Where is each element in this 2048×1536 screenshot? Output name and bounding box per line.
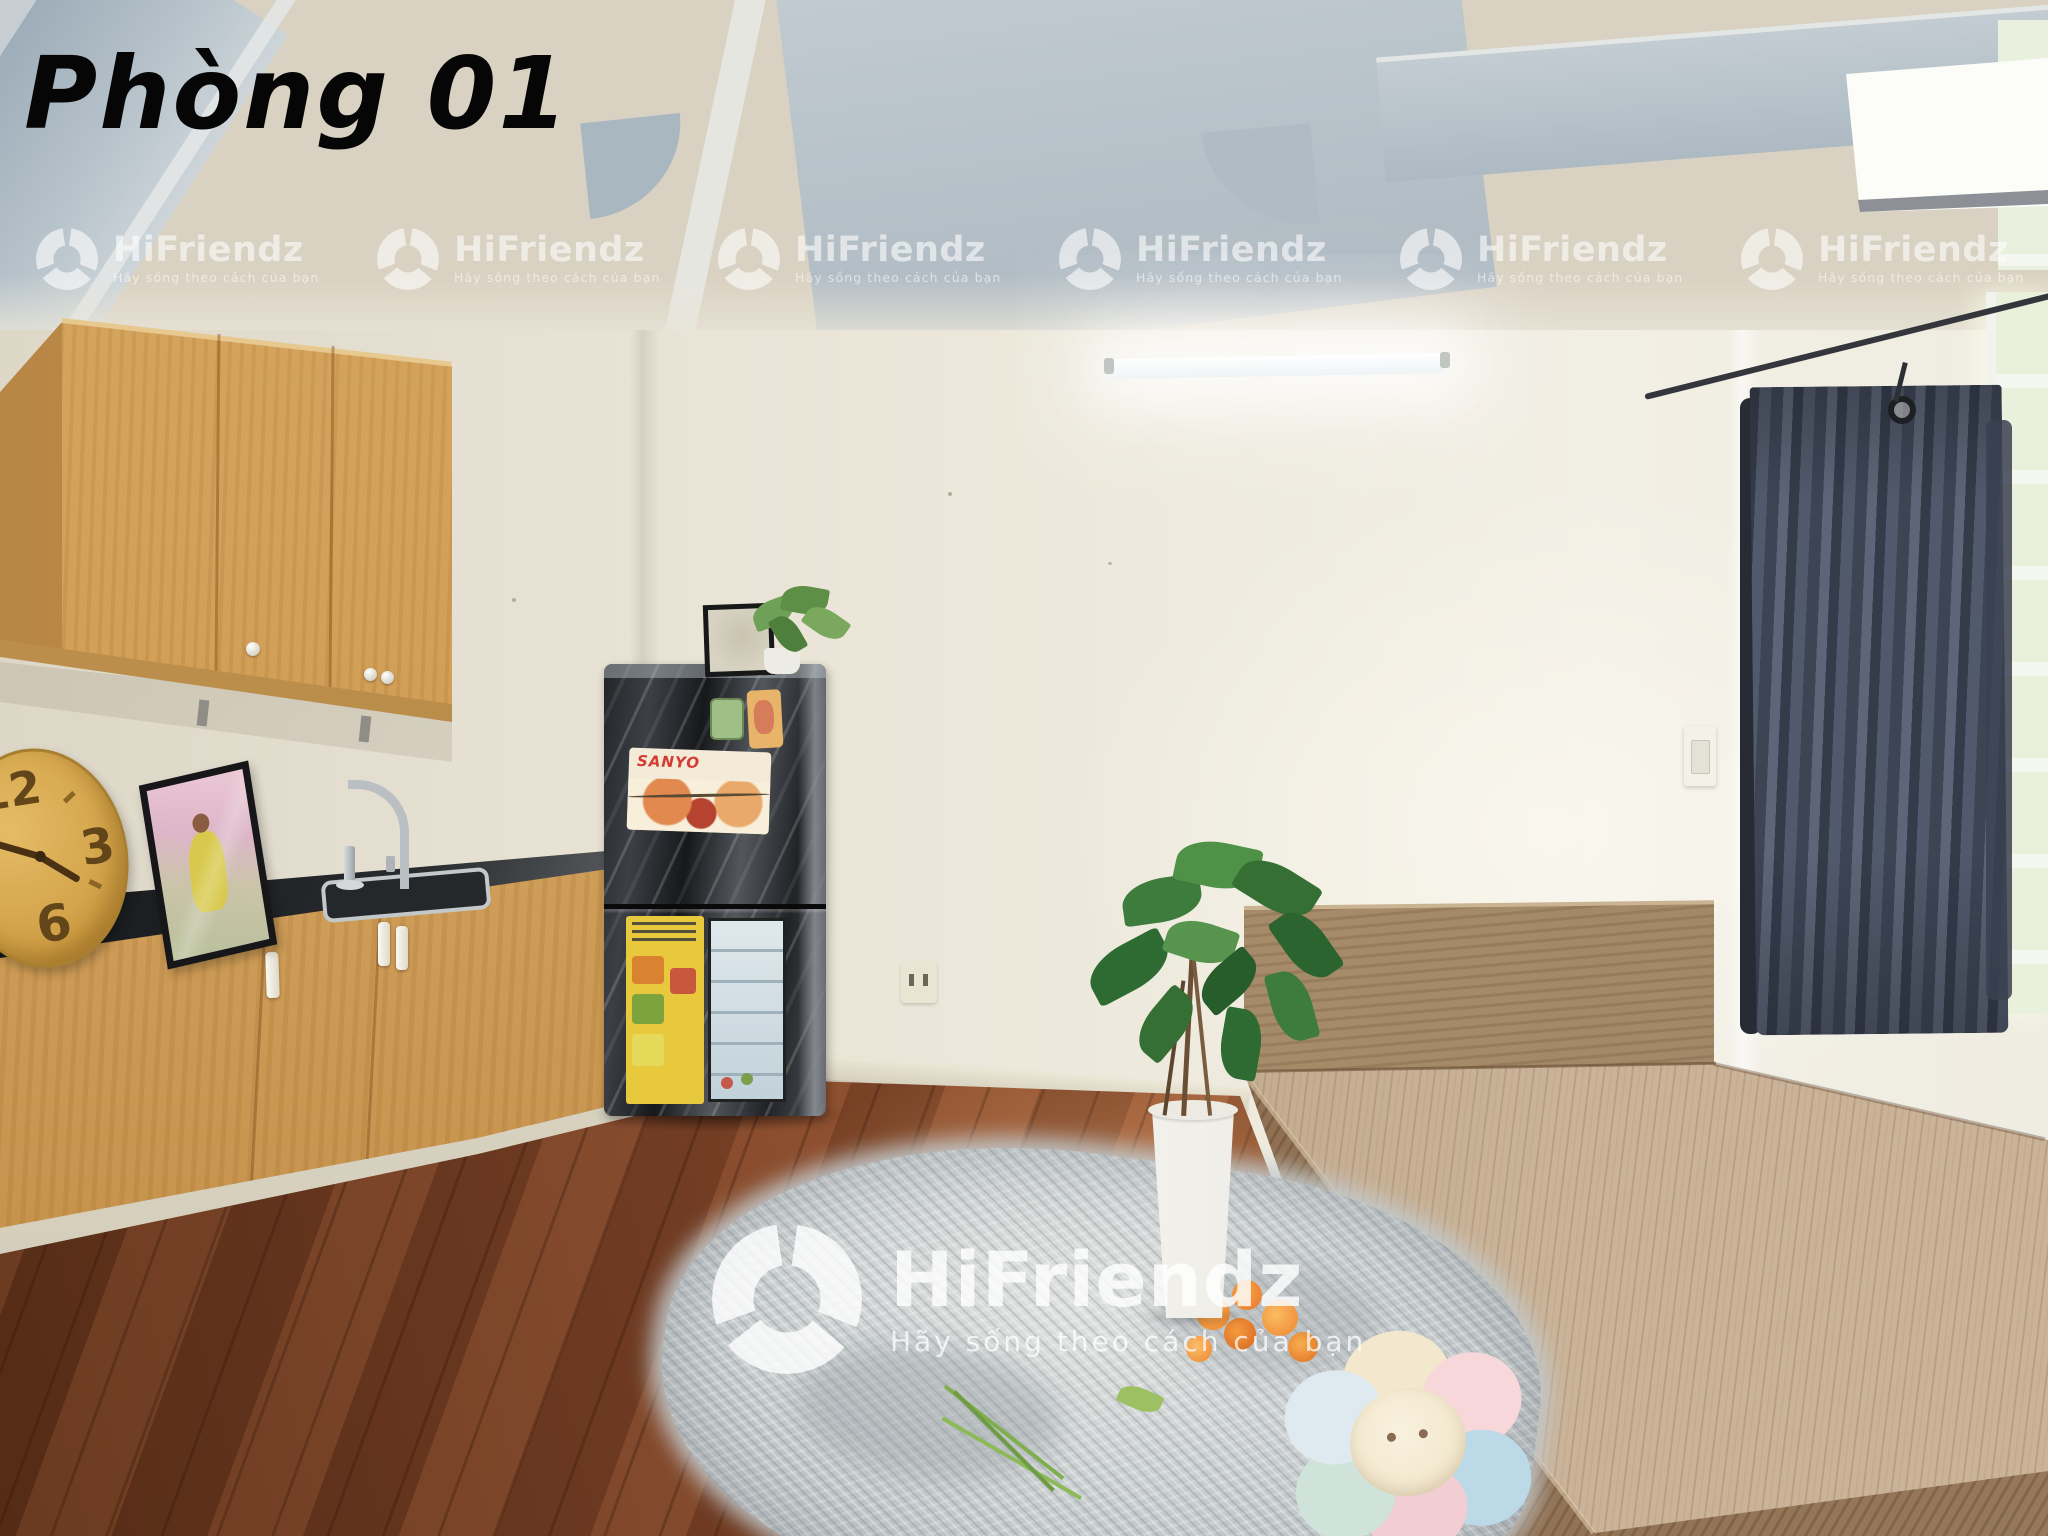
photo-frame-image bbox=[147, 769, 270, 961]
watermark-brand: HiFriendz bbox=[1477, 233, 1683, 269]
poster-food-tile bbox=[670, 968, 696, 994]
page-title: Phòng 01 bbox=[24, 44, 570, 144]
fridge-magnet-orange bbox=[747, 689, 784, 749]
fridge-poster-yellow bbox=[626, 916, 704, 1104]
curtain-right-fold bbox=[1986, 420, 2012, 1000]
cabinet-knob bbox=[364, 668, 377, 681]
ceiling-corbel-left bbox=[580, 113, 689, 219]
poster-dot bbox=[741, 1073, 753, 1085]
hifriendz-logo-icon bbox=[1741, 228, 1803, 290]
poster-food-tile bbox=[632, 1034, 664, 1066]
poster-dot bbox=[721, 1077, 733, 1089]
wall-speck bbox=[512, 598, 516, 602]
magnet-art bbox=[753, 700, 775, 735]
watermark-tagline: Hãy sống theo cách của bạn bbox=[1136, 272, 1342, 285]
hifriendz-logo-icon bbox=[718, 228, 780, 290]
watermark-tagline: Hãy sống theo cách của bạn bbox=[454, 272, 660, 285]
light-end-cap bbox=[1104, 358, 1114, 374]
outlet-slot bbox=[923, 974, 928, 986]
wall-speck bbox=[1108, 562, 1112, 565]
watermark: HiFriendzHãy sống theo cách của bạn bbox=[1059, 228, 1342, 290]
hifriendz-logo-icon bbox=[1059, 228, 1121, 290]
watermark-brand: HiFriendz bbox=[890, 1241, 1366, 1319]
cabinet-handle bbox=[378, 922, 390, 966]
wall-speck bbox=[948, 492, 952, 496]
watermark-brand: HiFriendz bbox=[795, 233, 1001, 269]
fridge-poster-interior bbox=[708, 918, 786, 1102]
watermark-brand: HiFriendz bbox=[1136, 233, 1342, 269]
light-switch bbox=[1684, 726, 1716, 786]
poster-food-tile bbox=[632, 994, 664, 1024]
watermark: HiFriendzHãy sống theo cách của bạn bbox=[1400, 228, 1683, 290]
poster-text-lines bbox=[632, 922, 696, 942]
fridge-brand-text: SANYO bbox=[637, 752, 701, 772]
curtain bbox=[1750, 385, 2009, 1036]
faucet-base bbox=[336, 880, 364, 890]
watermark: HiFriendzHãy sống theo cách của bạn bbox=[377, 228, 660, 290]
room-photo: 12 3 6 SANYO bbox=[0, 0, 2048, 1536]
cabinet-knob bbox=[381, 671, 394, 684]
watermark-tagline: Hãy sống theo cách của bạn bbox=[1477, 272, 1683, 285]
refrigerator: SANYO bbox=[604, 664, 826, 1116]
watermark: HiFriendzHãy sống theo cách của bạn bbox=[718, 228, 1001, 290]
hifriendz-logo-icon bbox=[1400, 228, 1462, 290]
power-outlet bbox=[901, 961, 937, 1003]
watermark: HiFriendzHãy sống theo cách của bạn bbox=[1741, 228, 2024, 290]
fridge-wrap-side bbox=[798, 664, 826, 1116]
watermark-tagline: Hãy sống theo cách của bạn bbox=[1818, 272, 2024, 285]
hifriendz-logo-icon bbox=[36, 228, 98, 290]
watermark-tagline: Hãy sống theo cách của bạn bbox=[795, 272, 1001, 285]
watermark-tagline: Hãy sống theo cách của bạn bbox=[113, 272, 319, 285]
poster-food-tile bbox=[632, 956, 664, 984]
fridge-sticker-sanyo: SANYO bbox=[627, 748, 772, 835]
watermark-brand: HiFriendz bbox=[1818, 233, 2024, 269]
outlet-slot bbox=[909, 974, 914, 986]
fridge-magnet-green bbox=[710, 698, 744, 740]
cabinet-handle bbox=[265, 952, 280, 998]
watermark-brand: HiFriendz bbox=[113, 233, 319, 269]
watermark-tagline: Hãy sống theo cách của bạn bbox=[890, 1328, 1366, 1357]
hifriendz-logo-icon bbox=[377, 228, 439, 290]
switch-rocker bbox=[1691, 740, 1710, 774]
watermark-center: HiFriendzHãy sống theo cách của bạn bbox=[712, 1224, 1366, 1374]
light-end-cap bbox=[1440, 352, 1450, 368]
watermark: HiFriendzHãy sống theo cách của bạn bbox=[36, 228, 319, 290]
faucet-spout bbox=[386, 856, 395, 872]
plant-pot-rim bbox=[1148, 1100, 1238, 1120]
fridge-door-split bbox=[604, 904, 826, 909]
hifriendz-logo-icon bbox=[712, 1224, 862, 1374]
cabinet-knob bbox=[246, 642, 260, 656]
cabinet-handle bbox=[396, 926, 408, 970]
sticker-food-art bbox=[627, 778, 771, 835]
watermark-brand: HiFriendz bbox=[454, 233, 660, 269]
photo-glass-glare bbox=[147, 769, 270, 961]
